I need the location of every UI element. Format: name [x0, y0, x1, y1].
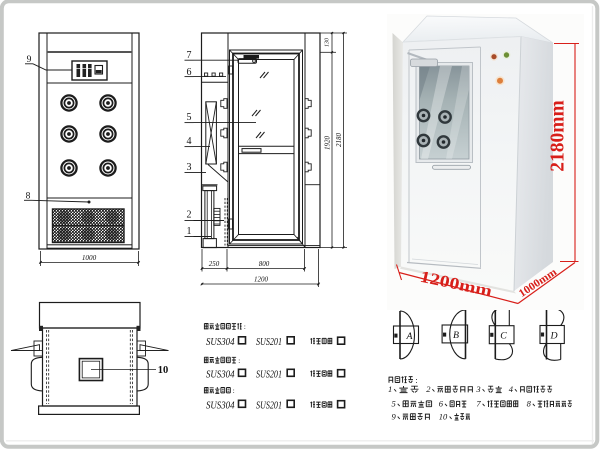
svg-text:SUS201: SUS201 [256, 400, 282, 411]
svg-text::: : [233, 387, 235, 395]
svg-text:3: 3 [187, 162, 192, 173]
svg-text:10: 10 [158, 365, 169, 376]
svg-text:2: 2 [426, 384, 431, 394]
svg-text:7: 7 [476, 399, 481, 409]
svg-text:1200: 1200 [254, 276, 269, 284]
svg-text:1920: 1920 [324, 136, 332, 151]
svg-text:1: 1 [388, 384, 392, 394]
svg-text::: : [238, 357, 240, 365]
svg-text:SUS201: SUS201 [256, 369, 282, 380]
svg-text:800: 800 [259, 260, 270, 268]
svg-text:SUS304: SUS304 [206, 337, 235, 348]
svg-text:SUS201: SUS201 [256, 337, 282, 348]
svg-text:SUS304: SUS304 [206, 369, 235, 380]
svg-text:SUS304: SUS304 [206, 400, 235, 411]
svg-text:4: 4 [509, 384, 514, 394]
svg-text:7: 7 [187, 50, 192, 61]
svg-text:6: 6 [439, 399, 444, 409]
svg-text:5: 5 [392, 399, 396, 409]
svg-text:2180mm: 2180mm [548, 100, 569, 172]
svg-text:5: 5 [187, 112, 192, 123]
svg-text:B: B [453, 330, 459, 341]
svg-text:1: 1 [187, 226, 192, 237]
svg-text:130: 130 [325, 38, 331, 47]
svg-text::: : [415, 376, 417, 385]
svg-text:1000: 1000 [82, 254, 97, 262]
svg-text:8: 8 [527, 399, 532, 409]
svg-text:A: A [406, 331, 414, 342]
svg-text:3: 3 [475, 384, 480, 394]
svg-text:C: C [500, 331, 507, 342]
svg-text:2180: 2180 [335, 133, 343, 148]
svg-text:4: 4 [187, 136, 192, 147]
svg-text::: : [244, 323, 246, 331]
svg-text:2: 2 [187, 210, 192, 221]
svg-text:250: 250 [209, 260, 220, 268]
svg-text:10: 10 [439, 411, 448, 421]
svg-text:D: D [549, 330, 557, 341]
